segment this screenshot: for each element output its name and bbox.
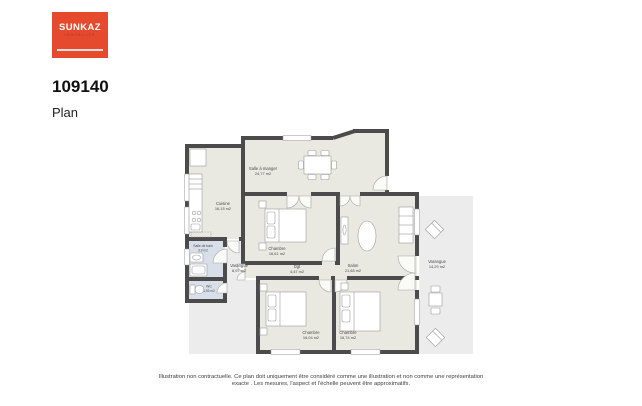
room-label: Salle de bain: [193, 244, 213, 248]
nightstand: [259, 243, 266, 250]
chair: [321, 175, 329, 180]
room-label: WC: [206, 285, 212, 289]
room-area: 16,15 m2: [215, 206, 231, 211]
footer: Illustration non contractuelle. Ce plan …: [0, 372, 642, 390]
room-area: 16,74 m2: [340, 335, 356, 340]
chair: [321, 151, 329, 156]
coffee-table: [358, 221, 376, 251]
window: [415, 299, 420, 325]
room-area: 8,97 m2: [232, 268, 246, 273]
pillow: [267, 212, 275, 224]
kitchen-counter: [189, 174, 202, 232]
room-area: 14,29 m2: [429, 264, 445, 269]
nightstand: [260, 284, 267, 291]
room-area: 1,93 m2: [203, 289, 215, 293]
window: [271, 350, 300, 355]
washbasin: [190, 253, 203, 262]
floor-plan-canvas: Salle à manger 24,77 m2 Cuisine 16,15 m2…: [183, 127, 475, 371]
floor-plan: Salle à manger 24,77 m2 Cuisine 16,15 m2…: [183, 127, 475, 371]
room-area: 21,68 m2: [345, 268, 361, 273]
room-area: 4,47 m2: [290, 269, 304, 274]
sideboard: [341, 217, 348, 244]
agency-logo-name: SUNKAZ: [59, 23, 101, 32]
chair: [308, 151, 316, 156]
chair: [431, 308, 440, 314]
agency-logo-subtitle: IMMOBILIER: [64, 33, 95, 37]
chair: [431, 286, 440, 292]
window: [351, 350, 380, 355]
pillow: [268, 309, 276, 321]
kitchen-sink: [191, 224, 200, 230]
nightstand: [341, 283, 348, 290]
varangue-right: [419, 196, 473, 354]
fridge: [190, 149, 206, 166]
toilet-tank: [190, 285, 195, 294]
wc-furniture: [190, 285, 204, 294]
patio-table: [429, 293, 442, 306]
room-area: 16,61 m2: [269, 251, 285, 256]
agency-logo: SUNKAZ IMMOBILIER: [52, 12, 108, 58]
agency-logo-tagline: [57, 49, 103, 52]
window: [415, 209, 420, 235]
room-area: 16,04 m2: [303, 335, 319, 340]
window: [283, 136, 311, 141]
dining-table: [304, 156, 331, 174]
nightstand: [260, 328, 267, 335]
pillow: [342, 310, 350, 322]
pillow: [342, 295, 350, 307]
plan-page: SUNKAZ IMMOBILIER 109140 Plan: [0, 0, 642, 406]
page-title: Plan: [52, 105, 78, 120]
nightstand: [259, 201, 266, 208]
room-area: 24,77 m2: [255, 171, 271, 176]
chair: [308, 175, 316, 180]
listing-reference: 109140: [52, 77, 109, 97]
pillow: [267, 226, 275, 238]
chair: [299, 161, 304, 169]
window: [185, 249, 190, 265]
pillow: [268, 295, 276, 307]
disclaimer-text: Illustration non contractuelle. Ce plan …: [155, 374, 487, 389]
chair: [332, 161, 337, 169]
room-area: 3,9 m2: [198, 249, 208, 253]
